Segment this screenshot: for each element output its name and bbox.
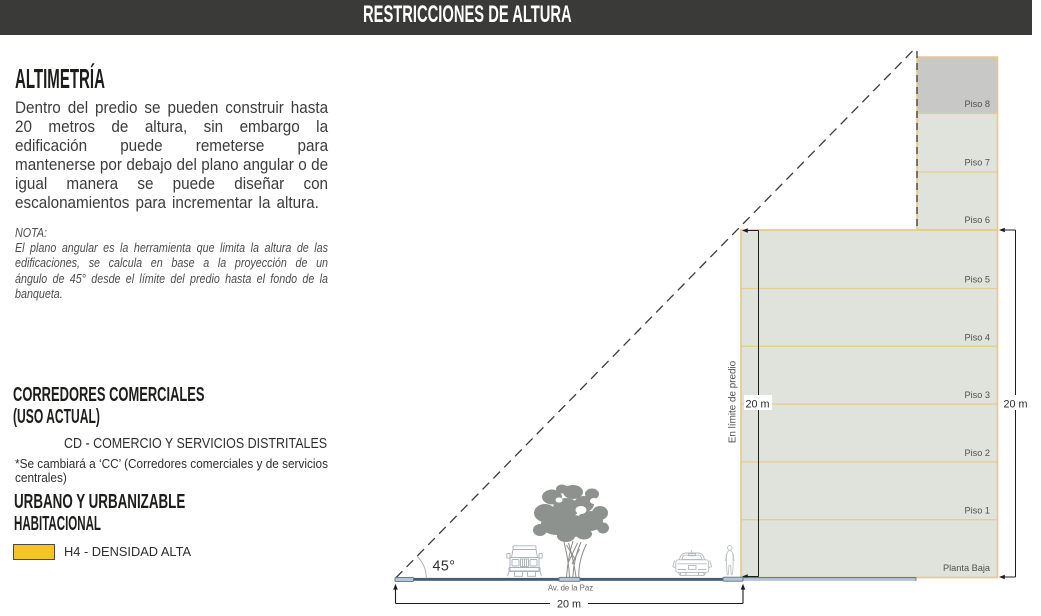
svg-text:En límite de predio: En límite de predio [728,360,739,443]
svg-text:20 m: 20 m [1004,399,1028,411]
svg-text:Piso 5: Piso 5 [964,275,990,285]
svg-text:Av. de la Paz: Av. de la Paz [548,583,593,592]
svg-text:Piso 7: Piso 7 [964,158,990,168]
svg-text:Planta Baja: Planta Baja [943,563,991,573]
svg-text:Piso 2: Piso 2 [964,448,990,458]
svg-text:Piso 4: Piso 4 [964,332,990,342]
svg-text:Piso 3: Piso 3 [964,390,990,400]
svg-text:20 m: 20 m [746,399,770,411]
svg-text:Piso 6: Piso 6 [964,215,990,225]
svg-text:20 m: 20 m [557,599,581,611]
svg-text:Piso 8: Piso 8 [964,99,990,109]
svg-text:Piso 1: Piso 1 [964,506,990,516]
svg-text:45°: 45° [433,558,456,574]
